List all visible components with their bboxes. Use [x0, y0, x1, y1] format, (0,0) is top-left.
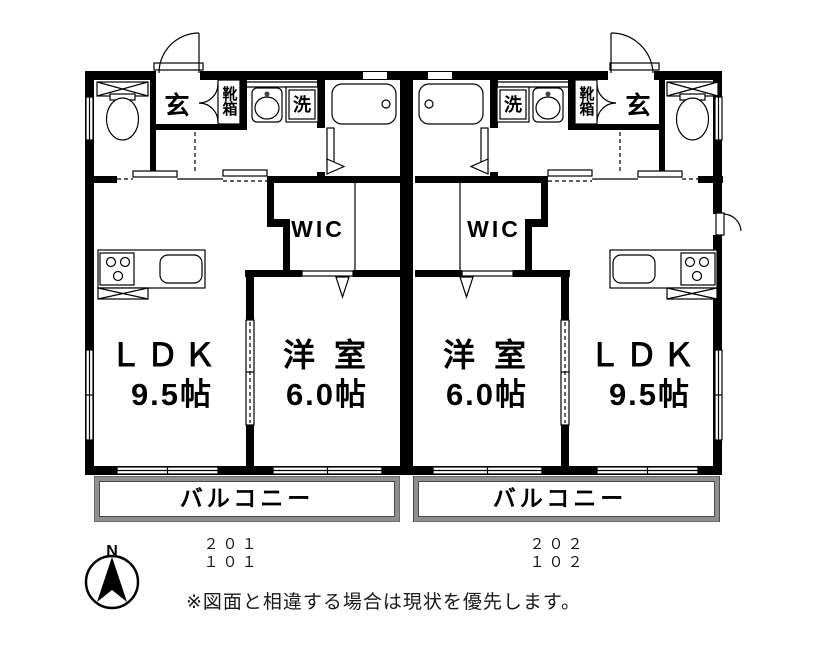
window-toilet-right-wall: [715, 97, 722, 140]
wall-hall-a-l: [92, 176, 117, 183]
slider-ldk-bedroom-l: [246, 320, 254, 425]
ldk-size-l: 9.5帖: [131, 377, 213, 412]
wall-wic-step-l: [267, 219, 290, 227]
laundry-label-l: 洗: [293, 94, 311, 115]
balcony-label-l: バルコニー: [180, 485, 315, 511]
bedroom-size-l: 6.0帖: [286, 377, 368, 412]
shoebox-label-l: 靴箱: [221, 85, 238, 117]
slider-ldk-bedroom-r: [561, 320, 569, 425]
wall-genkan-bottom-l: [150, 124, 242, 130]
disclaimer-note: ※図面と相違する場合は現状を優先します。: [186, 591, 581, 613]
wall-genkan-bottom-r: [573, 124, 665, 130]
unit-number-lower-l: １０１: [203, 554, 260, 571]
wall-wic-step-r: [525, 219, 548, 227]
ldk-label-l: ＬＤＫ: [109, 337, 220, 373]
window-bedroom-bottom-l: [273, 467, 382, 474]
genkan-label-l: 玄: [164, 91, 189, 120]
floor-plan-drawing: N 玄 靴箱 洗 WIC ＬＤＫ 9.5帖 洋 室 6.0帖 バルコニー ２０１…: [0, 0, 815, 649]
laundry-label-r: 洗: [504, 94, 522, 115]
bedroom-label-l: 洋 室: [283, 337, 371, 373]
compass-north-label: N: [106, 543, 118, 560]
window-bedroom-bottom-r: [433, 467, 542, 474]
wall-shoebox-r: [568, 80, 575, 130]
vent-bath-l: [363, 72, 387, 79]
wall-center-party: [400, 71, 413, 475]
ldk-slide-door-r: [548, 170, 592, 176]
bedroom-size-r: 6.0帖: [446, 377, 528, 412]
wall-wic1-l: [267, 182, 274, 219]
faucet: [265, 92, 270, 97]
unit-number-upper-l: ２０１: [203, 536, 260, 553]
counter: [610, 250, 717, 288]
ldk-label-r: ＬＤＫ: [588, 337, 699, 373]
window-ldk-bottom-l: [117, 467, 218, 474]
opening-bathdoor-r: [490, 128, 498, 172]
wall-hall-b-r: [415, 176, 548, 183]
balcony-label-r: バルコニー: [493, 485, 628, 511]
wic-label-r: WIC: [467, 216, 521, 242]
wall-hall-a-r: [698, 176, 723, 183]
opening-entrance-l: [156, 71, 200, 80]
bathtub-icon-r: [419, 84, 483, 124]
ldk-size-r: 9.5帖: [609, 377, 691, 412]
ldk-slide-door-l: [223, 170, 267, 176]
opening-entrance-r: [608, 71, 654, 80]
bedroom-label-r: 洋 室: [443, 337, 531, 373]
wall-wic2-r: [525, 227, 532, 271]
window-ldk-bottom-r: [597, 467, 698, 474]
bathtub-icon-l: [332, 84, 396, 124]
faucet: [546, 92, 551, 97]
window-ldk-right-wall: [715, 350, 722, 440]
shoebox-label-r: 靴箱: [578, 85, 595, 117]
unit-number-upper-r: ２０２: [529, 536, 586, 553]
wall-wic2-l: [283, 227, 290, 271]
vent-bath-r: [428, 72, 452, 79]
toilet-bowl: [107, 98, 139, 140]
wall-shoebox-l: [240, 80, 247, 130]
toilet-bowl: [677, 98, 709, 140]
toilet-door-leaf-r: [638, 171, 682, 177]
wall-wic1-r: [541, 182, 548, 219]
toilet-door-leaf-l: [133, 171, 177, 177]
unit-number-lower-r: １０２: [529, 554, 586, 571]
genkan-label-r: 玄: [625, 91, 650, 120]
wic-label-l: WIC: [291, 216, 345, 242]
floor-plan-page: N 玄 靴箱 洗 WIC ＬＤＫ 9.5帖 洋 室 6.0帖 バルコニー ２０１…: [0, 0, 815, 649]
window-toilet-left-wall: [86, 97, 93, 140]
counter: [98, 250, 205, 288]
opening-bathdoor-l: [317, 128, 325, 172]
wall-hall-b-l: [267, 176, 400, 183]
window-ldk-left-wall: [86, 350, 93, 440]
